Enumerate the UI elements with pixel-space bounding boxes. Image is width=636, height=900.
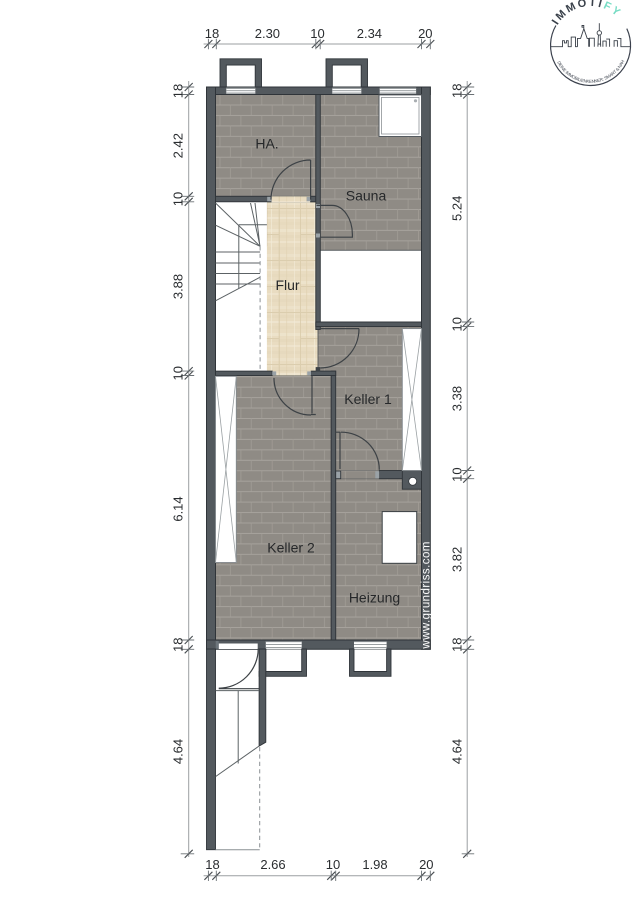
svg-text:Flur: Flur	[275, 277, 299, 293]
svg-text:18: 18	[171, 637, 186, 651]
svg-text:5.24: 5.24	[450, 196, 465, 221]
svg-text:18: 18	[450, 84, 465, 98]
svg-text:10: 10	[450, 467, 465, 481]
svg-text:18: 18	[205, 26, 219, 41]
svg-text:3.88: 3.88	[171, 274, 186, 299]
svg-text:10: 10	[326, 857, 340, 872]
svg-text:10: 10	[450, 317, 465, 331]
svg-text:1.98: 1.98	[362, 857, 387, 872]
svg-text:10: 10	[310, 26, 324, 41]
svg-text:Keller 2: Keller 2	[267, 540, 315, 556]
svg-text:10: 10	[171, 192, 186, 206]
svg-text:18: 18	[450, 637, 465, 651]
svg-text:4.64: 4.64	[450, 739, 465, 764]
svg-text:HA.: HA.	[255, 136, 278, 152]
svg-text:3.38: 3.38	[450, 386, 465, 411]
svg-text:20: 20	[418, 26, 432, 41]
svg-text:2.42: 2.42	[171, 133, 186, 158]
svg-text:4.64: 4.64	[171, 739, 186, 764]
svg-text:www.grundriss.com: www.grundriss.com	[421, 542, 433, 650]
svg-text:20: 20	[419, 857, 433, 872]
svg-text:3.82: 3.82	[450, 547, 465, 572]
svg-text:6.14: 6.14	[171, 496, 186, 521]
svg-text:18: 18	[171, 84, 186, 98]
svg-text:Heizung: Heizung	[349, 590, 400, 606]
svg-text:2.66: 2.66	[260, 857, 285, 872]
svg-text:2.34: 2.34	[357, 26, 382, 41]
svg-text:18: 18	[205, 857, 219, 872]
svg-text:Keller 1: Keller 1	[344, 391, 392, 407]
svg-text:10: 10	[171, 366, 186, 380]
svg-text:Sauna: Sauna	[346, 188, 387, 204]
svg-text:2.30: 2.30	[255, 26, 280, 41]
